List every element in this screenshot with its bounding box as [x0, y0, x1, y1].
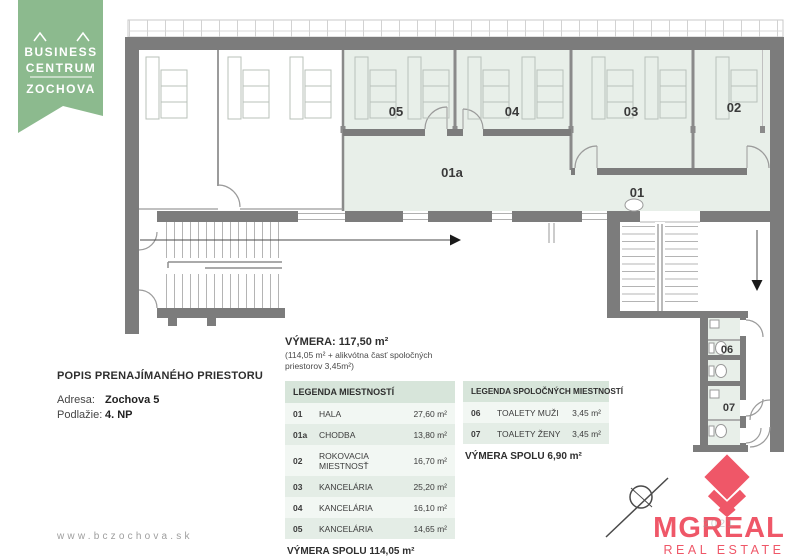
legend-row: 01HALA27,60 m²: [285, 403, 455, 424]
room-area: 13,80 m²: [407, 430, 447, 440]
wc-tank-icon: [709, 426, 714, 436]
banner-line1: BUSINESS: [24, 45, 97, 59]
description-block: POPIS PRENAJÍMANÉHO PRIESTORU Adresa: Zo…: [57, 370, 277, 421]
agency-logo: MGREAL 2021 REAL ESTATE: [653, 454, 785, 557]
address-label: Adresa:: [57, 394, 105, 406]
address-value: Zochova 5: [105, 394, 159, 406]
agency-tagline: REAL ESTATE: [664, 543, 785, 557]
area-note-line1: (114,05 m² + alikvótna časť spoločných: [285, 350, 475, 361]
room-area: 16,10 m²: [407, 503, 447, 513]
legend-rooms-total: VÝMERA SPOLU 114,05 m²: [285, 546, 455, 557]
room-area: 25,20 m²: [407, 482, 447, 492]
wc-tank-icon: [709, 366, 714, 376]
sink-icon: [710, 320, 719, 328]
website-url: www.bczochova.sk: [57, 531, 193, 542]
legend-common-total: VÝMERA SPOLU 6,90 m²: [463, 451, 609, 462]
area-note-line2: priestorov 3,45m²): [285, 361, 475, 372]
room-label-01: 01: [630, 185, 644, 200]
banner-line3: ZOCHOVA: [26, 82, 96, 96]
direction-arrow-icon: [140, 223, 554, 246]
room-name: TOALETY ŽENY: [497, 429, 561, 439]
legend-row: 06TOALETY MUŽI3,45 m²: [463, 402, 609, 423]
room-area: 27,60 m²: [407, 409, 447, 419]
room-label-04: 04: [505, 104, 520, 119]
room-area: 3,45 m²: [561, 429, 601, 439]
room-label-03: 03: [624, 104, 638, 119]
room-label-01a: 01a: [441, 165, 463, 180]
room-area: 14,65 m²: [407, 524, 447, 534]
room-label-06: 06: [721, 344, 733, 356]
room-name: KANCELÁRIA: [319, 524, 407, 534]
room-label-07: 07: [723, 402, 735, 414]
room-name: ROKOVACIA MIESTNOSŤ: [319, 451, 407, 471]
room-label-02: 02: [727, 100, 741, 115]
room-name: TOALETY MUŽI: [497, 408, 561, 418]
room-code: 07: [471, 429, 497, 439]
room-code: 01: [293, 409, 319, 419]
room-name: CHODBA: [319, 430, 407, 440]
logo-banner: BUSINESS CENTRUM ZOCHOVA: [18, 0, 103, 133]
legend-row: 02ROKOVACIA MIESTNOSŤ16,70 m²: [285, 445, 455, 476]
legend-rooms-title: LEGENDA MIESTNOSTÍ: [285, 381, 455, 403]
area-total-title: VÝMERA: 117,50 m²: [285, 336, 475, 348]
room-name: KANCELÁRIA: [319, 503, 407, 513]
room-area: 3,45 m²: [561, 408, 601, 418]
floor-label: Podlažie:: [57, 409, 105, 421]
room-name: HALA: [319, 409, 407, 419]
legend-common-title: LEGENDA SPOLOČNÝCH MIESTNOSTÍ: [463, 381, 609, 402]
legend-row: 04KANCELÁRIA16,10 m²: [285, 497, 455, 518]
plan-watermark: 2021: [703, 518, 735, 530]
stairs-right: [614, 222, 748, 318]
room-code: 04: [293, 503, 319, 513]
description-title: POPIS PRENAJÍMANÉHO PRIESTORU: [57, 370, 277, 382]
room-code: 02: [293, 456, 319, 466]
room-code: 06: [471, 408, 497, 418]
room-code: 03: [293, 482, 319, 492]
room-code: 05: [293, 524, 319, 534]
legend-rooms: LEGENDA MIESTNOSTÍ 01HALA27,60 m² 01aCHO…: [285, 381, 455, 557]
wc-tank-icon: [709, 343, 714, 353]
address-row: Adresa: Zochova 5: [57, 394, 277, 406]
down-arrow-icon: [752, 230, 763, 291]
legend-row: 07TOALETY ŽENY3,45 m²: [463, 423, 609, 444]
area-summary: VÝMERA: 117,50 m² (114,05 m² + alikvótna…: [285, 336, 475, 371]
room-name: KANCELÁRIA: [319, 482, 407, 492]
room-area: 16,70 m²: [407, 456, 447, 466]
wc-icon: [716, 425, 727, 438]
room-label-05: 05: [389, 104, 403, 119]
legend-row: 03KANCELÁRIA25,20 m²: [285, 476, 455, 497]
floorplan-sheet: BUSINESS CENTRUM ZOCHOVA: [0, 0, 799, 558]
basin-icon: [625, 199, 643, 211]
legend-common: LEGENDA SPOLOČNÝCH MIESTNOSTÍ 06TOALETY …: [463, 381, 609, 462]
room-code: 01a: [293, 430, 319, 440]
stairs-left: [139, 185, 285, 326]
facade-band: [128, 20, 783, 37]
banner-line2: CENTRUM: [26, 61, 97, 75]
floor-value: 4. NP: [105, 409, 133, 421]
sink-icon: [710, 390, 719, 398]
legend-row: 05KANCELÁRIA14,65 m²: [285, 518, 455, 539]
floor-row: Podlažie: 4. NP: [57, 409, 277, 421]
legend-row: 01aCHODBA13,80 m²: [285, 424, 455, 445]
wc-icon: [716, 365, 727, 378]
